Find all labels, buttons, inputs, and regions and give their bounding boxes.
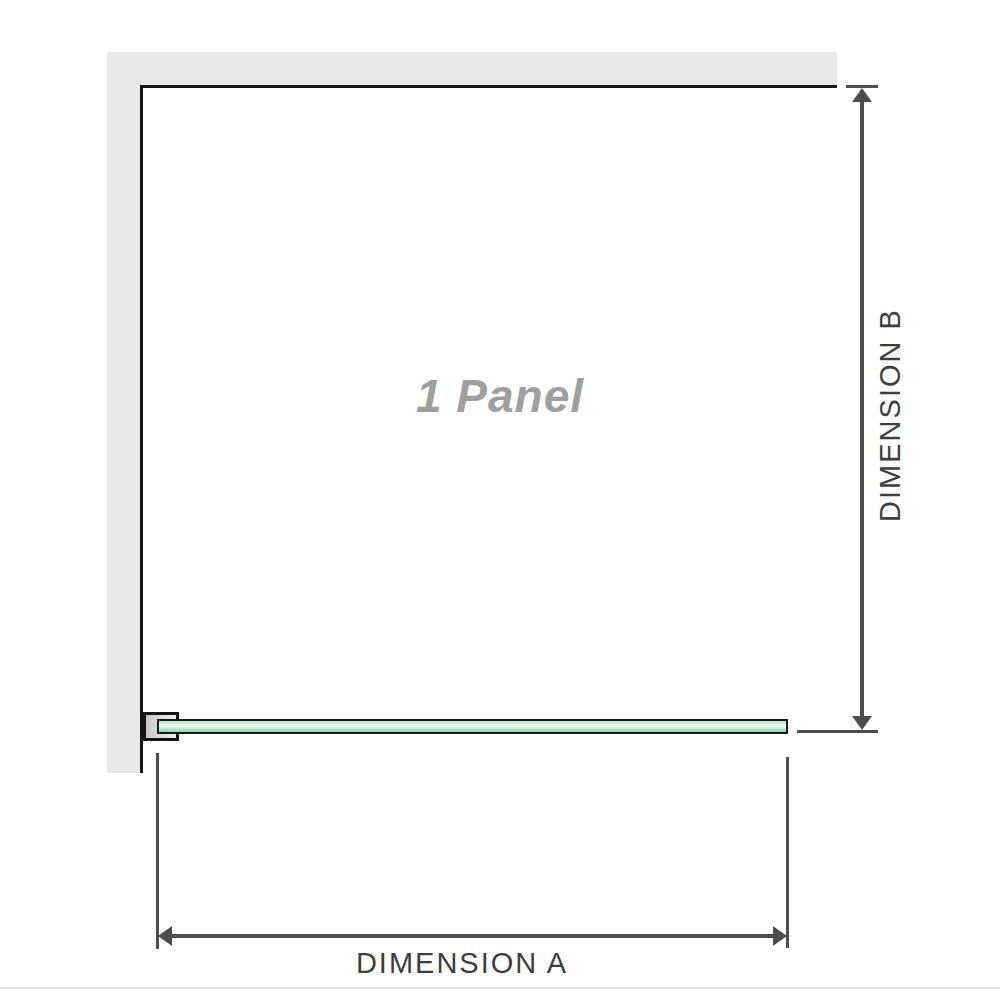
image-bottom-edge [0, 987, 1000, 989]
arrow-down-icon [852, 716, 872, 730]
shower-panel-diagram: 1 Panel DIMENSION B DIMENSION A [0, 0, 1000, 1000]
panel-count-label: 1 Panel [416, 369, 584, 423]
panel-top-edge [140, 85, 837, 88]
arrow-right-icon [773, 926, 787, 946]
panel-left-edge [140, 85, 143, 773]
dimension-a-label: DIMENSION A [356, 947, 568, 980]
dimension-b-line [860, 98, 864, 722]
wall-left [107, 52, 140, 773]
wall-top [107, 52, 837, 85]
dimension-b-label: DIMENSION B [874, 308, 907, 522]
dimension-a-line [170, 934, 775, 938]
arrow-up-icon [852, 88, 872, 102]
glass-panel [157, 719, 788, 734]
dimension-a-right-extension-line [786, 757, 789, 948]
arrow-left-icon [158, 926, 172, 946]
dimension-a-left-extension-line [156, 753, 159, 949]
dimension-b-bottom-tick [797, 730, 878, 733]
